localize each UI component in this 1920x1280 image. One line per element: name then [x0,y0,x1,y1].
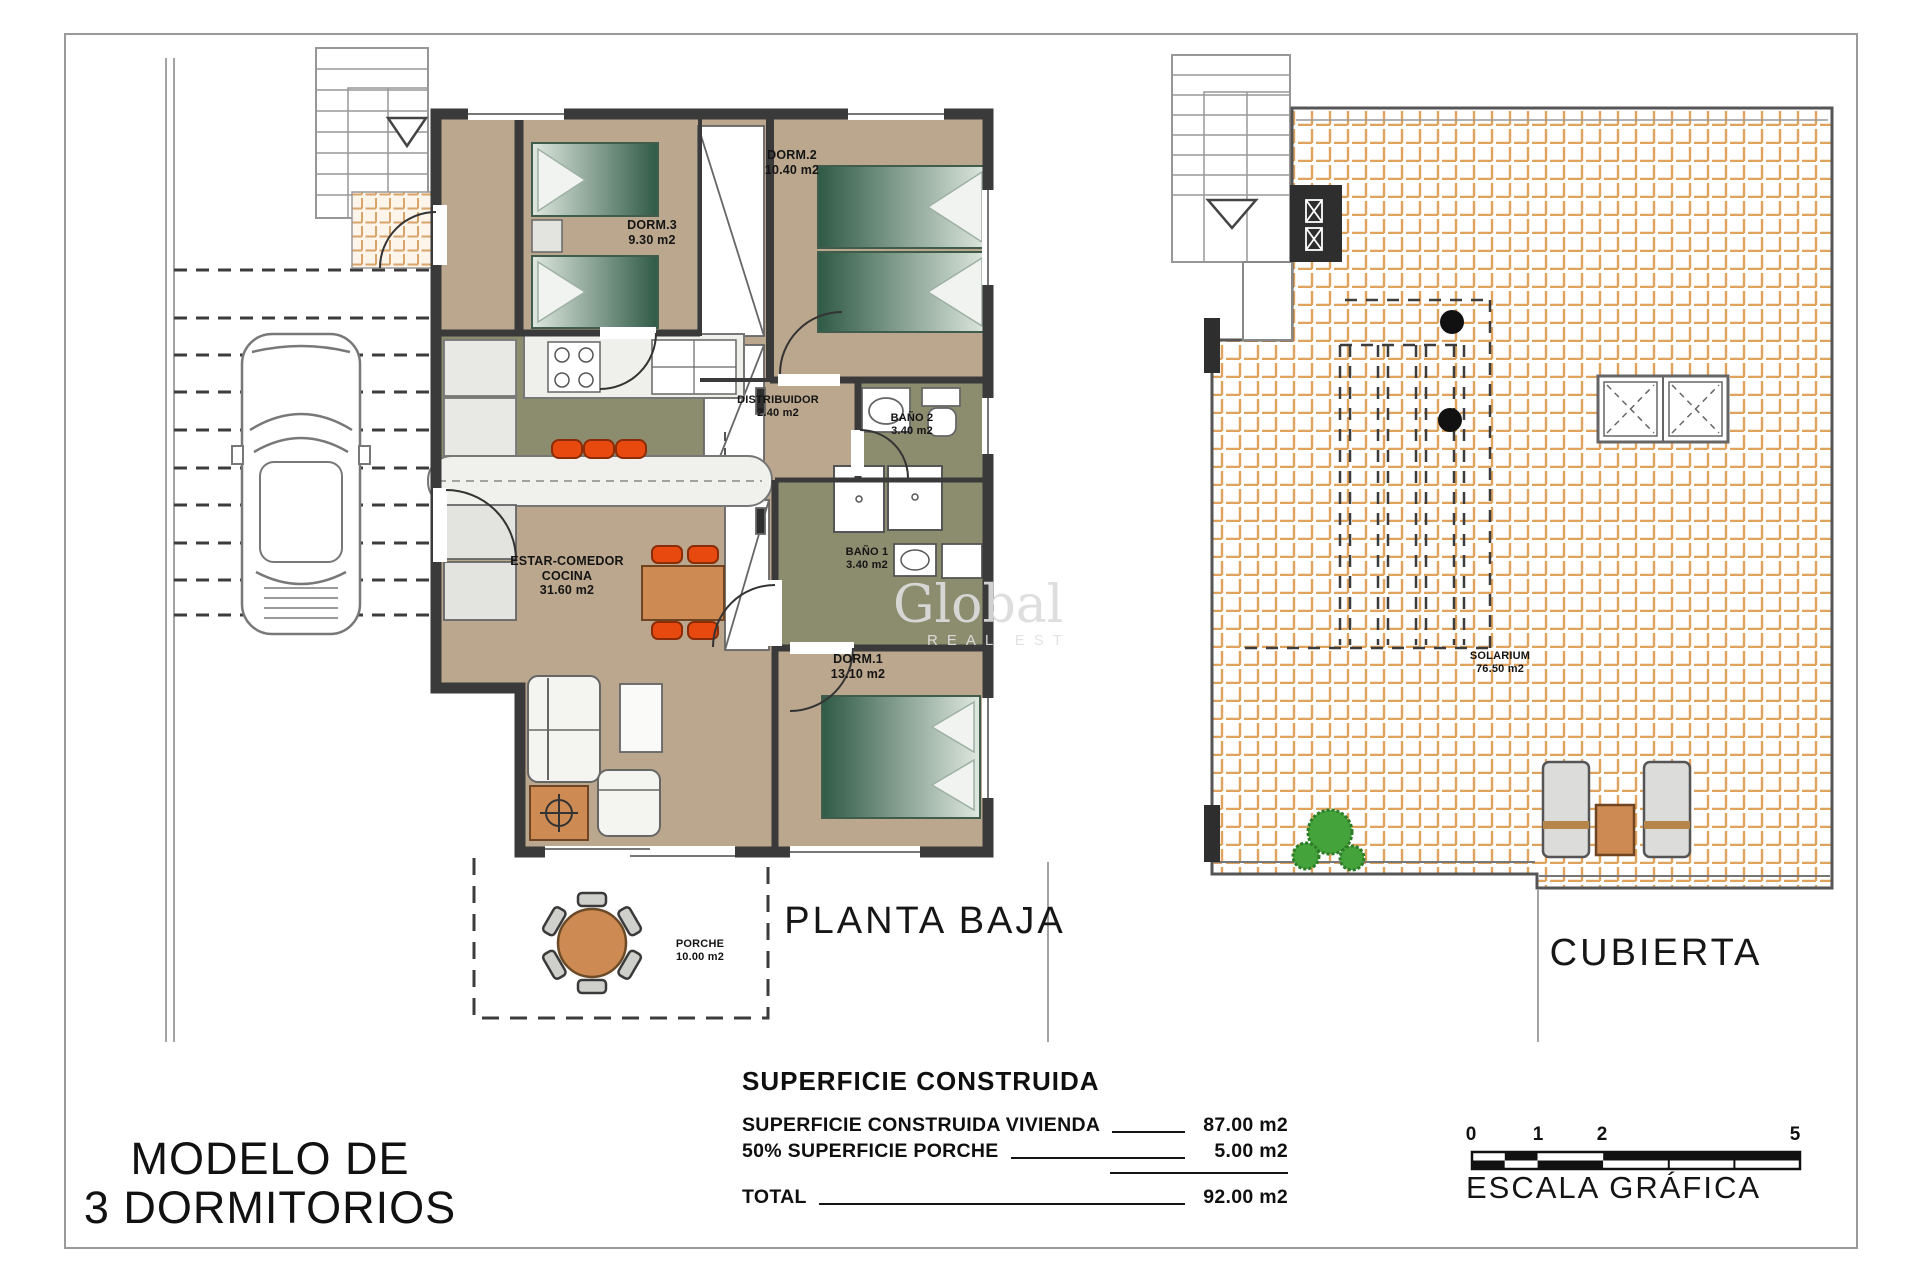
room-label-distribuidor: DISTRIBUIDOR 2.40 m2 [737,394,819,419]
car-icon [232,334,370,634]
summary-title: SUPERFICIE CONSTRUIDA [742,1066,1100,1097]
room-label-bano2: BAÑO 2 3.40 m2 [891,412,934,437]
bar-stool [584,440,614,458]
summary-separator [1110,1172,1288,1174]
scale-tick-0: 0 [1466,1124,1477,1146]
scale-tick-5: 5 [1790,1124,1801,1146]
room-label-bano1: BAÑO 1 3.40 m2 [846,546,889,571]
leader-line [819,1203,1185,1205]
bar-stool [616,440,646,458]
roof-plan [1172,55,1832,888]
chimney-dot [1440,310,1464,334]
watermark: Global REAL EST [893,578,1071,649]
scale-tick-1: 1 [1533,1124,1544,1146]
summary-row-total: TOTAL 92.00 m2 [742,1186,1288,1209]
toilet-icon [922,388,960,406]
roof-staircase [1172,55,1290,262]
toilet-icon [942,544,982,578]
dorm1-bed [822,696,980,818]
porch-round-table [542,893,643,993]
dorm2-beds [818,166,988,332]
room-label-solarium: SOLARIUM 76.50 m2 [1470,650,1530,675]
summary-row: SUPERFICIE CONSTRUIDA VIVIENDA 87.00 m2 [742,1114,1288,1137]
scale-bar [1472,1152,1800,1169]
bar-stool [552,440,582,458]
plan-caption-cubierta: CUBIERTA [1550,932,1763,975]
room-label-dorm1: DORM.1 13.10 m2 [831,652,885,681]
scale-bar-caption: ESCALA GRÁFICA [1466,1170,1761,1206]
side-table-compass [530,786,588,840]
summary-row: 50% SUPERFICIE PORCHE 5.00 m2 [742,1140,1288,1163]
fridge-icon [444,340,516,396]
room-label-porche: PORCHE 10.00 m2 [676,938,724,963]
dining-table [642,566,724,620]
lounger-table [1596,805,1634,855]
floor-plan-sheet: DORM.3 9.30 m2 DORM.2 10.40 m2 DISTRIBUI… [0,0,1920,1280]
skylight [1598,376,1728,442]
sofa [528,676,600,782]
room-label-dorm2: DORM.2 10.40 m2 [765,148,819,177]
model-title: MODELO DE 3 DORMITORIOS [84,1134,456,1232]
chimney-dot [1438,408,1462,432]
room-label-dorm3: DORM.3 9.30 m2 [627,218,677,247]
leader-line [1011,1157,1185,1159]
leader-line [1112,1131,1185,1133]
plan-caption-planta-baja: PLANTA BAJA [784,900,1066,943]
coffee-table [620,684,662,752]
scale-tick-2: 2 [1597,1124,1608,1146]
armchair [598,770,660,836]
room-label-estar-comedor: ESTAR-COMEDOR COCINA 31.60 m2 [510,554,623,598]
